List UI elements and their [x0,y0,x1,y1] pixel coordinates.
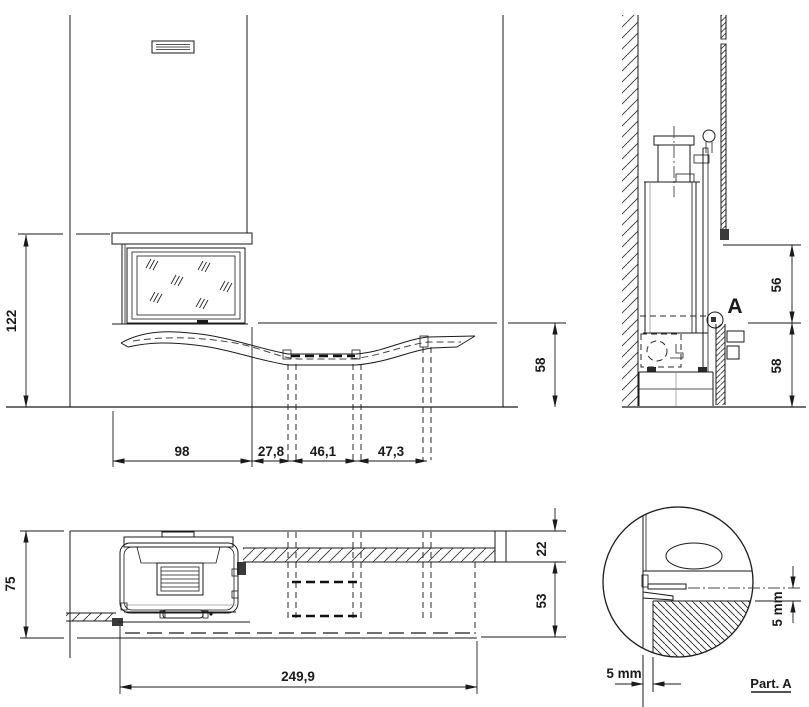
panel-seal-block [720,229,729,240]
damper-hole [666,543,722,569]
hinge [232,591,238,598]
dim-overall-length-label: 249,9 [281,669,315,684]
support-block-section [653,601,759,659]
dim-depth-label: 75 [3,576,18,592]
dim-gap-width-label: 27,8 [258,444,285,459]
flue-pipe [654,126,694,197]
wall-plan-left [66,613,123,626]
plan-dimensions: 75 22 53 249,9 [3,508,566,694]
bench-panel-section [716,324,744,405]
curved-bench-front [121,332,475,365]
stove-plan [118,532,250,622]
bench-bracket-side [727,331,744,342]
side-section-view: A 56 58 [622,15,806,407]
detail-caption-label: Part. A [750,676,792,691]
glass-reflection-mark [150,292,162,303]
door-latch [197,320,208,324]
fan-unit-hidden [641,334,707,372]
damper-pulley [703,130,715,142]
glass-reflection-mark [220,281,232,292]
damper-mechanism [694,130,715,163]
plan-view: 75 22 53 249,9 [3,508,566,694]
door-handle-plan [163,610,203,618]
bench-bracket-side [727,346,739,359]
dim-right-width-label: 47,3 [378,444,405,459]
foot [647,367,656,372]
firebox-front [112,233,252,324]
front-dimensions: 122 58 98 27,8 46,1 47,3 [4,234,566,467]
fireplace-installation-drawing: 122 58 98 27,8 46,1 47,3 [0,0,809,707]
dim-bench-depth-label: 53 [534,593,549,609]
foot [698,367,707,372]
shelf-support-bar [648,584,686,589]
front-elevation-view: 122 58 98 27,8 46,1 47,3 [4,15,566,467]
glass-reflection-mark [146,259,158,270]
dim-bench-height-label: 58 [533,357,548,373]
fireplace-window-frame [127,248,245,323]
dim-opening-height-label: 56 [769,277,784,293]
dim-overall-height-label: 122 [4,310,19,333]
bench-top-lip [643,592,673,600]
chimney-front-panel-section [720,15,729,240]
technical-drawing-page: 122 58 98 27,8 46,1 47,3 [0,0,809,707]
wall-plan-right [237,531,506,575]
glass-reflection-mark [198,261,210,272]
dim-side-bench-height-label: 58 [769,358,784,374]
base-platform-section [639,372,713,406]
dim-firebox-width-label: 98 [174,444,190,459]
detail-marker-label: A [727,295,742,318]
wall-end-block [495,531,506,562]
side-dimensions: 56 58 [723,245,801,407]
dim-seat-width-label: 46,1 [310,444,337,459]
glass-reflection-mark [196,298,208,309]
detail-view-part-a: 5 mm 5 mm Part. A [603,507,801,707]
dim-wall-thickness-label: 22 [534,541,549,556]
firebox-section [643,148,708,372]
dim-gap-horizontal-label: 5 mm [606,666,641,681]
detail-callout-marker: A [707,295,743,328]
glass-reflection-mark [171,275,183,286]
vent-grille [152,41,194,53]
detail-contents [642,507,759,659]
detail-caption: Part. A [750,676,792,692]
dim-gap-vertical-label: 5 mm [770,591,785,626]
